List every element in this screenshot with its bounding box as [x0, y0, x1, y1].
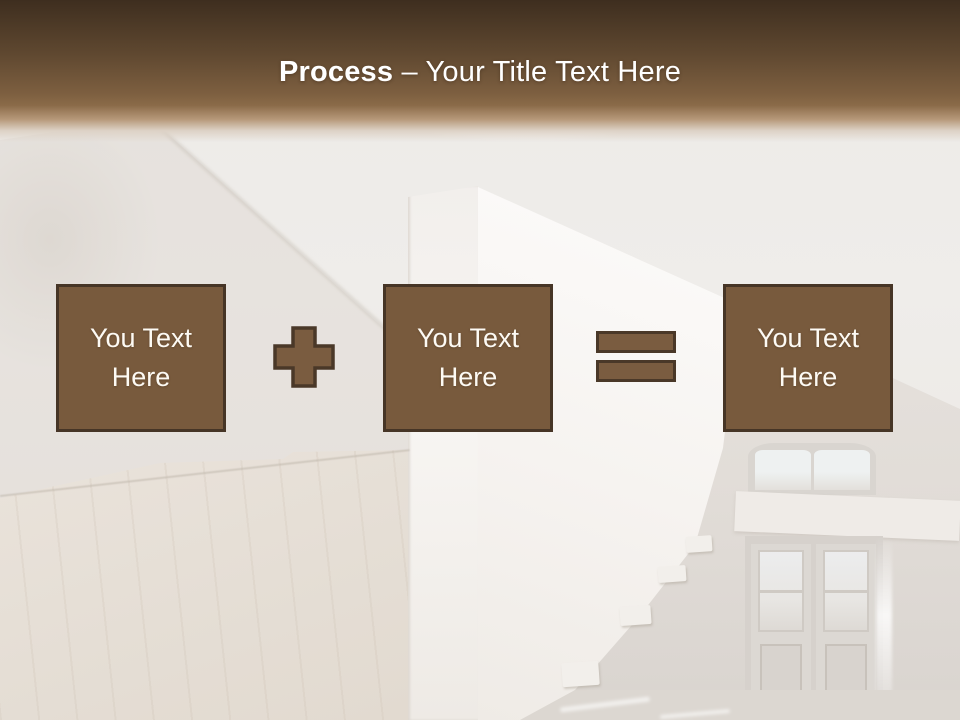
parapet-lamp — [685, 535, 712, 553]
door-glazing-bar — [823, 590, 869, 593]
plus-icon[interactable] — [272, 325, 336, 389]
arched-window — [748, 443, 876, 495]
wall-light-streak — [876, 536, 892, 712]
door-right — [816, 544, 876, 708]
equals-bar-top — [596, 331, 676, 353]
equals-icon[interactable] — [596, 331, 676, 383]
door-glazing-bar — [758, 590, 804, 593]
parapet-lamp — [619, 605, 651, 626]
parapet-lamp — [657, 565, 686, 583]
slide: Process – Your Title Text Here You Text … — [0, 0, 960, 720]
window-pane — [755, 450, 811, 490]
door-panel — [825, 644, 867, 696]
lower-doors — [745, 536, 883, 708]
slide-title[interactable]: Process – Your Title Text Here — [0, 56, 960, 89]
door-panel — [760, 644, 802, 696]
slide-title-rest: – Your Title Text Here — [401, 56, 681, 88]
process-box-2-label: You Text Here — [398, 319, 538, 397]
window-pane — [814, 450, 870, 490]
door-left — [751, 544, 811, 708]
process-box-1[interactable]: You Text Here — [56, 284, 226, 432]
process-box-3-label: You Text Here — [738, 319, 878, 397]
slide-title-emphasis: Process — [279, 56, 393, 88]
equals-bar-bottom — [596, 360, 676, 382]
process-box-1-label: You Text Here — [71, 319, 211, 397]
partition-wall-left-face — [408, 186, 478, 720]
parapet-lamp — [561, 661, 600, 688]
process-box-3[interactable]: You Text Here — [723, 284, 893, 432]
process-box-2[interactable]: You Text Here — [383, 284, 553, 432]
